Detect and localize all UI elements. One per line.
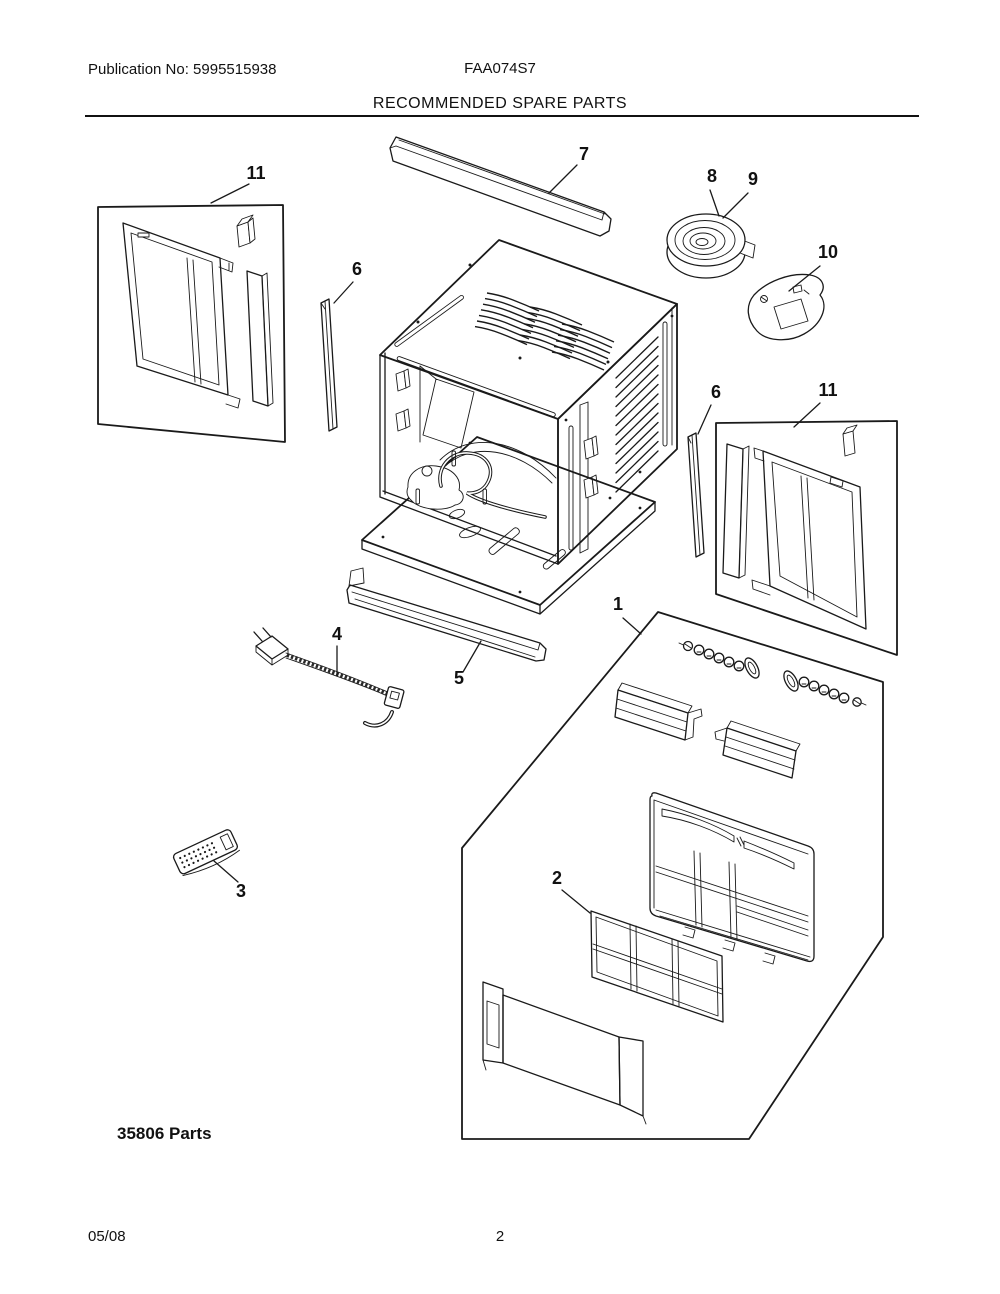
callout-6-left: 6 [352,259,362,279]
callout-2: 2 [552,868,562,888]
screw-kit-row-1 [679,642,762,681]
part-4-power-cord [254,628,404,726]
callout-1: 1 [613,594,623,614]
exploded-parts-diagram: 11 7 8 9 10 6 6 11 1 5 4 3 2 [0,0,1000,1294]
callout-8: 8 [707,166,717,186]
callout-leader-lines [211,165,820,913]
screw-kit-row-2 [781,669,866,706]
part-1-front-assembly-kit [462,612,883,1139]
part-11-left-window-panel-assembly [98,205,285,442]
part-6-left-seal-strip [321,299,337,431]
inlet-grille-mesh [483,982,646,1124]
parts-group-note: 35806 Parts [117,1124,212,1144]
callout-11-left: 11 [246,163,265,183]
part-8-9-foam-seal-roll [667,214,755,278]
footer-page-number: 2 [0,1228,1000,1245]
main-cabinet-shell [380,240,677,564]
part-3-remote-control [172,829,240,880]
part-7-top-mounting-rail [390,137,611,236]
part-5-bottom-mounting-rail [347,568,546,661]
callout-10: 10 [818,242,838,262]
callout-11-right: 11 [818,380,837,400]
side-louvers [616,337,658,492]
top-vent-louvers [475,293,614,370]
callout-labels: 11 7 8 9 10 6 6 11 1 5 4 3 2 [236,144,838,901]
front-grille-panel [650,793,814,964]
part-6-right-seal-strip [688,433,704,557]
foam-block-left [615,683,702,740]
part-2-air-filter [591,911,723,1022]
callout-5: 5 [454,668,464,688]
part-11-right-window-panel-assembly [716,421,897,655]
callout-4: 4 [332,624,342,644]
callout-3: 3 [236,881,246,901]
callout-9: 9 [748,169,758,189]
document-page: Publication No: 5995515938 FAA074S7 RECO… [0,0,1000,1294]
foam-block-right [715,721,800,778]
part-10-bracket [748,274,824,339]
base-pan [362,437,655,614]
callout-7: 7 [579,144,589,164]
callout-6-right: 6 [711,382,721,402]
